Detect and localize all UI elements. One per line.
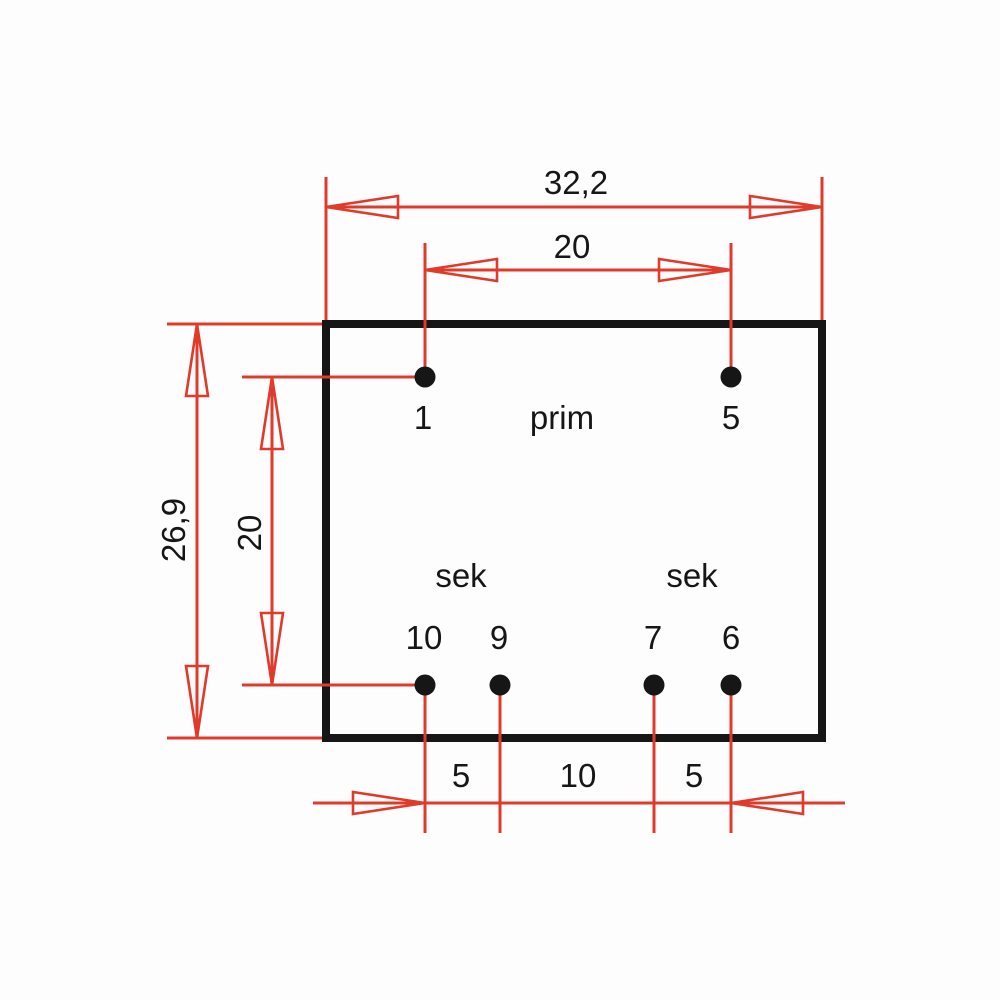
bottom-pitch-value-1: 5: [452, 757, 470, 794]
overall-width-value: 32,2: [544, 164, 608, 201]
pin-7-dot: [644, 675, 665, 696]
pin-5-dot: [721, 367, 742, 388]
pin-10-dot: [415, 675, 436, 696]
pin-1-dot: [415, 367, 436, 388]
pin-6-dot: [721, 675, 742, 696]
pin-6-label: 6: [722, 619, 740, 656]
pin-7-label: 7: [644, 619, 662, 656]
pin-10-label: 10: [406, 619, 443, 656]
pin-9-label: 9: [490, 619, 508, 656]
transformer-dimension-drawing: 32,2 20 26,9 20 5 10 5 prim sek sek 1 5 …: [0, 0, 1000, 1000]
pin-row-pitch-value: 20: [231, 515, 268, 552]
pin-9-dot: [490, 675, 511, 696]
transformer-body-outline: [326, 324, 822, 738]
top-pin-pitch-value: 20: [554, 228, 591, 265]
overall-height-value: 26,9: [155, 498, 192, 562]
primary-winding-label: prim: [530, 399, 594, 436]
bottom-pitch-value-2: 10: [560, 757, 597, 794]
secondary-winding-left-label: sek: [435, 557, 487, 594]
drawing-canvas: 32,2 20 26,9 20 5 10 5 prim sek sek 1 5 …: [0, 0, 1000, 1000]
secondary-winding-right-label: sek: [666, 557, 718, 594]
pin-5-label: 5: [722, 399, 740, 436]
bottom-pitch-value-3: 5: [685, 757, 703, 794]
pin-1-label: 1: [414, 399, 432, 436]
dim-pin-row-pitch: [242, 377, 425, 685]
